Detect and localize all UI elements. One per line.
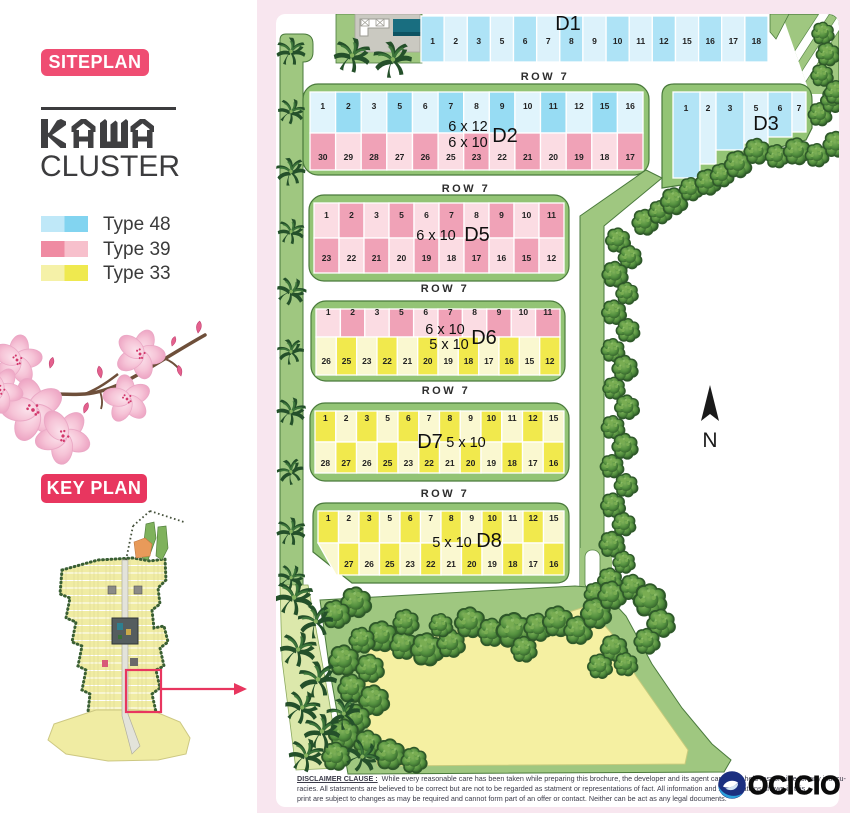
svg-text:D2: D2 [492,125,518,147]
svg-text:20: 20 [423,356,433,366]
svg-text:7: 7 [449,101,454,111]
svg-text:8: 8 [474,210,479,220]
svg-text:28: 28 [321,458,331,468]
svg-text:27: 27 [341,458,351,468]
svg-text:3: 3 [367,513,372,523]
svg-text:12: 12 [545,356,555,366]
svg-text:2: 2 [350,307,355,317]
svg-text:20: 20 [549,152,559,162]
svg-text:11: 11 [543,307,552,317]
svg-text:2: 2 [346,513,351,523]
svg-text:26: 26 [421,152,431,162]
svg-text:21: 21 [446,559,456,569]
svg-text:17: 17 [625,152,635,162]
svg-text:3: 3 [728,103,733,113]
svg-text:15: 15 [549,413,559,423]
svg-text:30: 30 [318,152,328,162]
svg-text:19: 19 [487,559,497,569]
svg-text:23: 23 [362,356,372,366]
svg-text:26: 26 [362,458,372,468]
svg-text:7: 7 [546,36,551,46]
svg-text:18: 18 [508,559,518,569]
svg-text:23: 23 [404,458,414,468]
svg-text:16: 16 [504,356,514,366]
svg-text:25: 25 [446,152,456,162]
svg-text:12: 12 [547,253,557,263]
svg-text:16: 16 [705,36,715,46]
svg-text:23: 23 [405,559,415,569]
svg-text:2: 2 [453,36,458,46]
svg-text:6: 6 [423,101,428,111]
svg-text:18: 18 [464,356,474,366]
svg-text:ROW 7: ROW 7 [422,385,471,397]
svg-text:15: 15 [522,253,532,263]
svg-text:28: 28 [369,152,379,162]
svg-text:11: 11 [508,513,517,523]
svg-text:22: 22 [426,559,436,569]
svg-text:8: 8 [449,513,454,523]
svg-text:8: 8 [569,36,574,46]
svg-text:9: 9 [469,513,474,523]
svg-text:23: 23 [472,152,482,162]
svg-text:18: 18 [447,253,457,263]
svg-text:5: 5 [387,513,392,523]
svg-text:25: 25 [342,356,352,366]
svg-text:12: 12 [528,413,538,423]
svg-text:11: 11 [508,413,517,423]
svg-text:23: 23 [322,253,332,263]
svg-text:1: 1 [324,210,329,220]
svg-text:1: 1 [326,307,331,317]
svg-text:29: 29 [344,152,354,162]
svg-text:10: 10 [519,307,529,317]
svg-text:17: 17 [528,458,538,468]
svg-text:12: 12 [528,513,538,523]
svg-text:D1: D1 [555,14,581,35]
svg-text:20: 20 [397,253,407,263]
svg-text:22: 22 [497,152,507,162]
svg-text:N: N [702,429,717,452]
svg-text:5: 5 [500,36,505,46]
svg-text:25: 25 [383,458,393,468]
svg-text:ROW 7: ROW 7 [421,283,470,295]
svg-text:21: 21 [523,152,533,162]
svg-text:3: 3 [372,101,377,111]
svg-text:16: 16 [549,458,559,468]
svg-text:1: 1 [684,103,689,113]
svg-text:7: 7 [449,210,454,220]
svg-text:1: 1 [320,101,325,111]
svg-text:2: 2 [706,103,711,113]
svg-text:8: 8 [448,413,453,423]
svg-text:5: 5 [397,101,402,111]
svg-text:9: 9 [497,307,502,317]
svg-text:18: 18 [752,36,762,46]
svg-text:5 x 10: 5 x 10 [446,435,486,451]
svg-text:11: 11 [549,101,558,111]
svg-text:10: 10 [613,36,623,46]
svg-text:6: 6 [778,103,783,113]
svg-text:10: 10 [522,210,532,220]
svg-text:ROW 7: ROW 7 [442,183,491,195]
svg-text:6: 6 [424,210,429,220]
svg-text:5 x 10: 5 x 10 [429,337,469,353]
svg-text:10: 10 [487,513,497,523]
svg-text:7: 7 [427,413,432,423]
svg-text:15: 15 [549,513,559,523]
svg-text:15: 15 [682,36,692,46]
svg-text:19: 19 [422,253,432,263]
svg-text:17: 17 [528,559,538,569]
svg-text:1: 1 [430,36,435,46]
svg-text:10: 10 [523,101,533,111]
svg-text:2: 2 [346,101,351,111]
svg-text:7: 7 [448,307,453,317]
svg-text:D7: D7 [417,431,443,453]
svg-text:2: 2 [349,210,354,220]
svg-text:19: 19 [574,152,584,162]
svg-text:OCICIO: OCICIO [748,770,840,800]
svg-text:5: 5 [385,413,390,423]
svg-text:10: 10 [487,413,497,423]
svg-text:20: 20 [466,458,476,468]
svg-text:6 x 10: 6 x 10 [416,228,456,244]
svg-text:6: 6 [408,513,413,523]
svg-text:5: 5 [754,103,759,113]
svg-text:27: 27 [344,559,354,569]
svg-text:12: 12 [659,36,669,46]
svg-text:19: 19 [443,356,453,366]
svg-text:8: 8 [474,101,479,111]
svg-text:9: 9 [468,413,473,423]
svg-text:20: 20 [467,559,477,569]
svg-text:18: 18 [507,458,517,468]
svg-text:22: 22 [382,356,392,366]
svg-text:6 x 10: 6 x 10 [448,135,488,151]
svg-text:3: 3 [375,307,380,317]
svg-text:26: 26 [321,356,331,366]
svg-text:6 x 10: 6 x 10 [425,322,465,338]
svg-text:D8: D8 [476,530,502,552]
svg-text:3: 3 [476,36,481,46]
svg-text:16: 16 [497,253,507,263]
svg-text:2: 2 [344,413,349,423]
svg-text:22: 22 [424,458,434,468]
svg-text:27: 27 [395,152,405,162]
svg-text:22: 22 [347,253,357,263]
svg-text:15: 15 [525,356,535,366]
svg-text:12: 12 [574,101,584,111]
svg-text:16: 16 [549,559,559,569]
svg-text:6 x 12: 6 x 12 [448,119,488,135]
svg-text:3: 3 [365,413,370,423]
svg-text:6: 6 [523,36,528,46]
svg-text:11: 11 [547,210,556,220]
svg-text:17: 17 [472,253,482,263]
svg-text:5: 5 [399,307,404,317]
svg-text:21: 21 [372,253,382,263]
svg-text:9: 9 [592,36,597,46]
svg-text:6: 6 [423,307,428,317]
svg-text:1: 1 [323,413,328,423]
svg-text:D6: D6 [471,327,497,349]
svg-text:26: 26 [364,559,374,569]
svg-text:25: 25 [385,559,395,569]
svg-text:5: 5 [399,210,404,220]
svg-text:3: 3 [374,210,379,220]
svg-text:17: 17 [729,36,739,46]
svg-text:8: 8 [472,307,477,317]
svg-text:7: 7 [428,513,433,523]
svg-text:ROW 7: ROW 7 [521,71,570,83]
svg-text:9: 9 [499,210,504,220]
svg-text:11: 11 [636,36,645,46]
svg-text:21: 21 [403,356,413,366]
svg-text:D5: D5 [464,224,490,246]
svg-text:7: 7 [797,103,802,113]
svg-text:17: 17 [484,356,494,366]
svg-text:21: 21 [445,458,455,468]
svg-text:19: 19 [487,458,497,468]
svg-text:D3: D3 [753,113,779,135]
svg-text:18: 18 [600,152,610,162]
svg-text:6: 6 [406,413,411,423]
svg-text:9: 9 [500,101,505,111]
svg-text:5 x 10: 5 x 10 [432,535,472,551]
svg-text:16: 16 [625,101,635,111]
svg-text:15: 15 [600,101,610,111]
svg-text:ROW 7: ROW 7 [421,488,470,500]
svg-text:1: 1 [326,513,331,523]
